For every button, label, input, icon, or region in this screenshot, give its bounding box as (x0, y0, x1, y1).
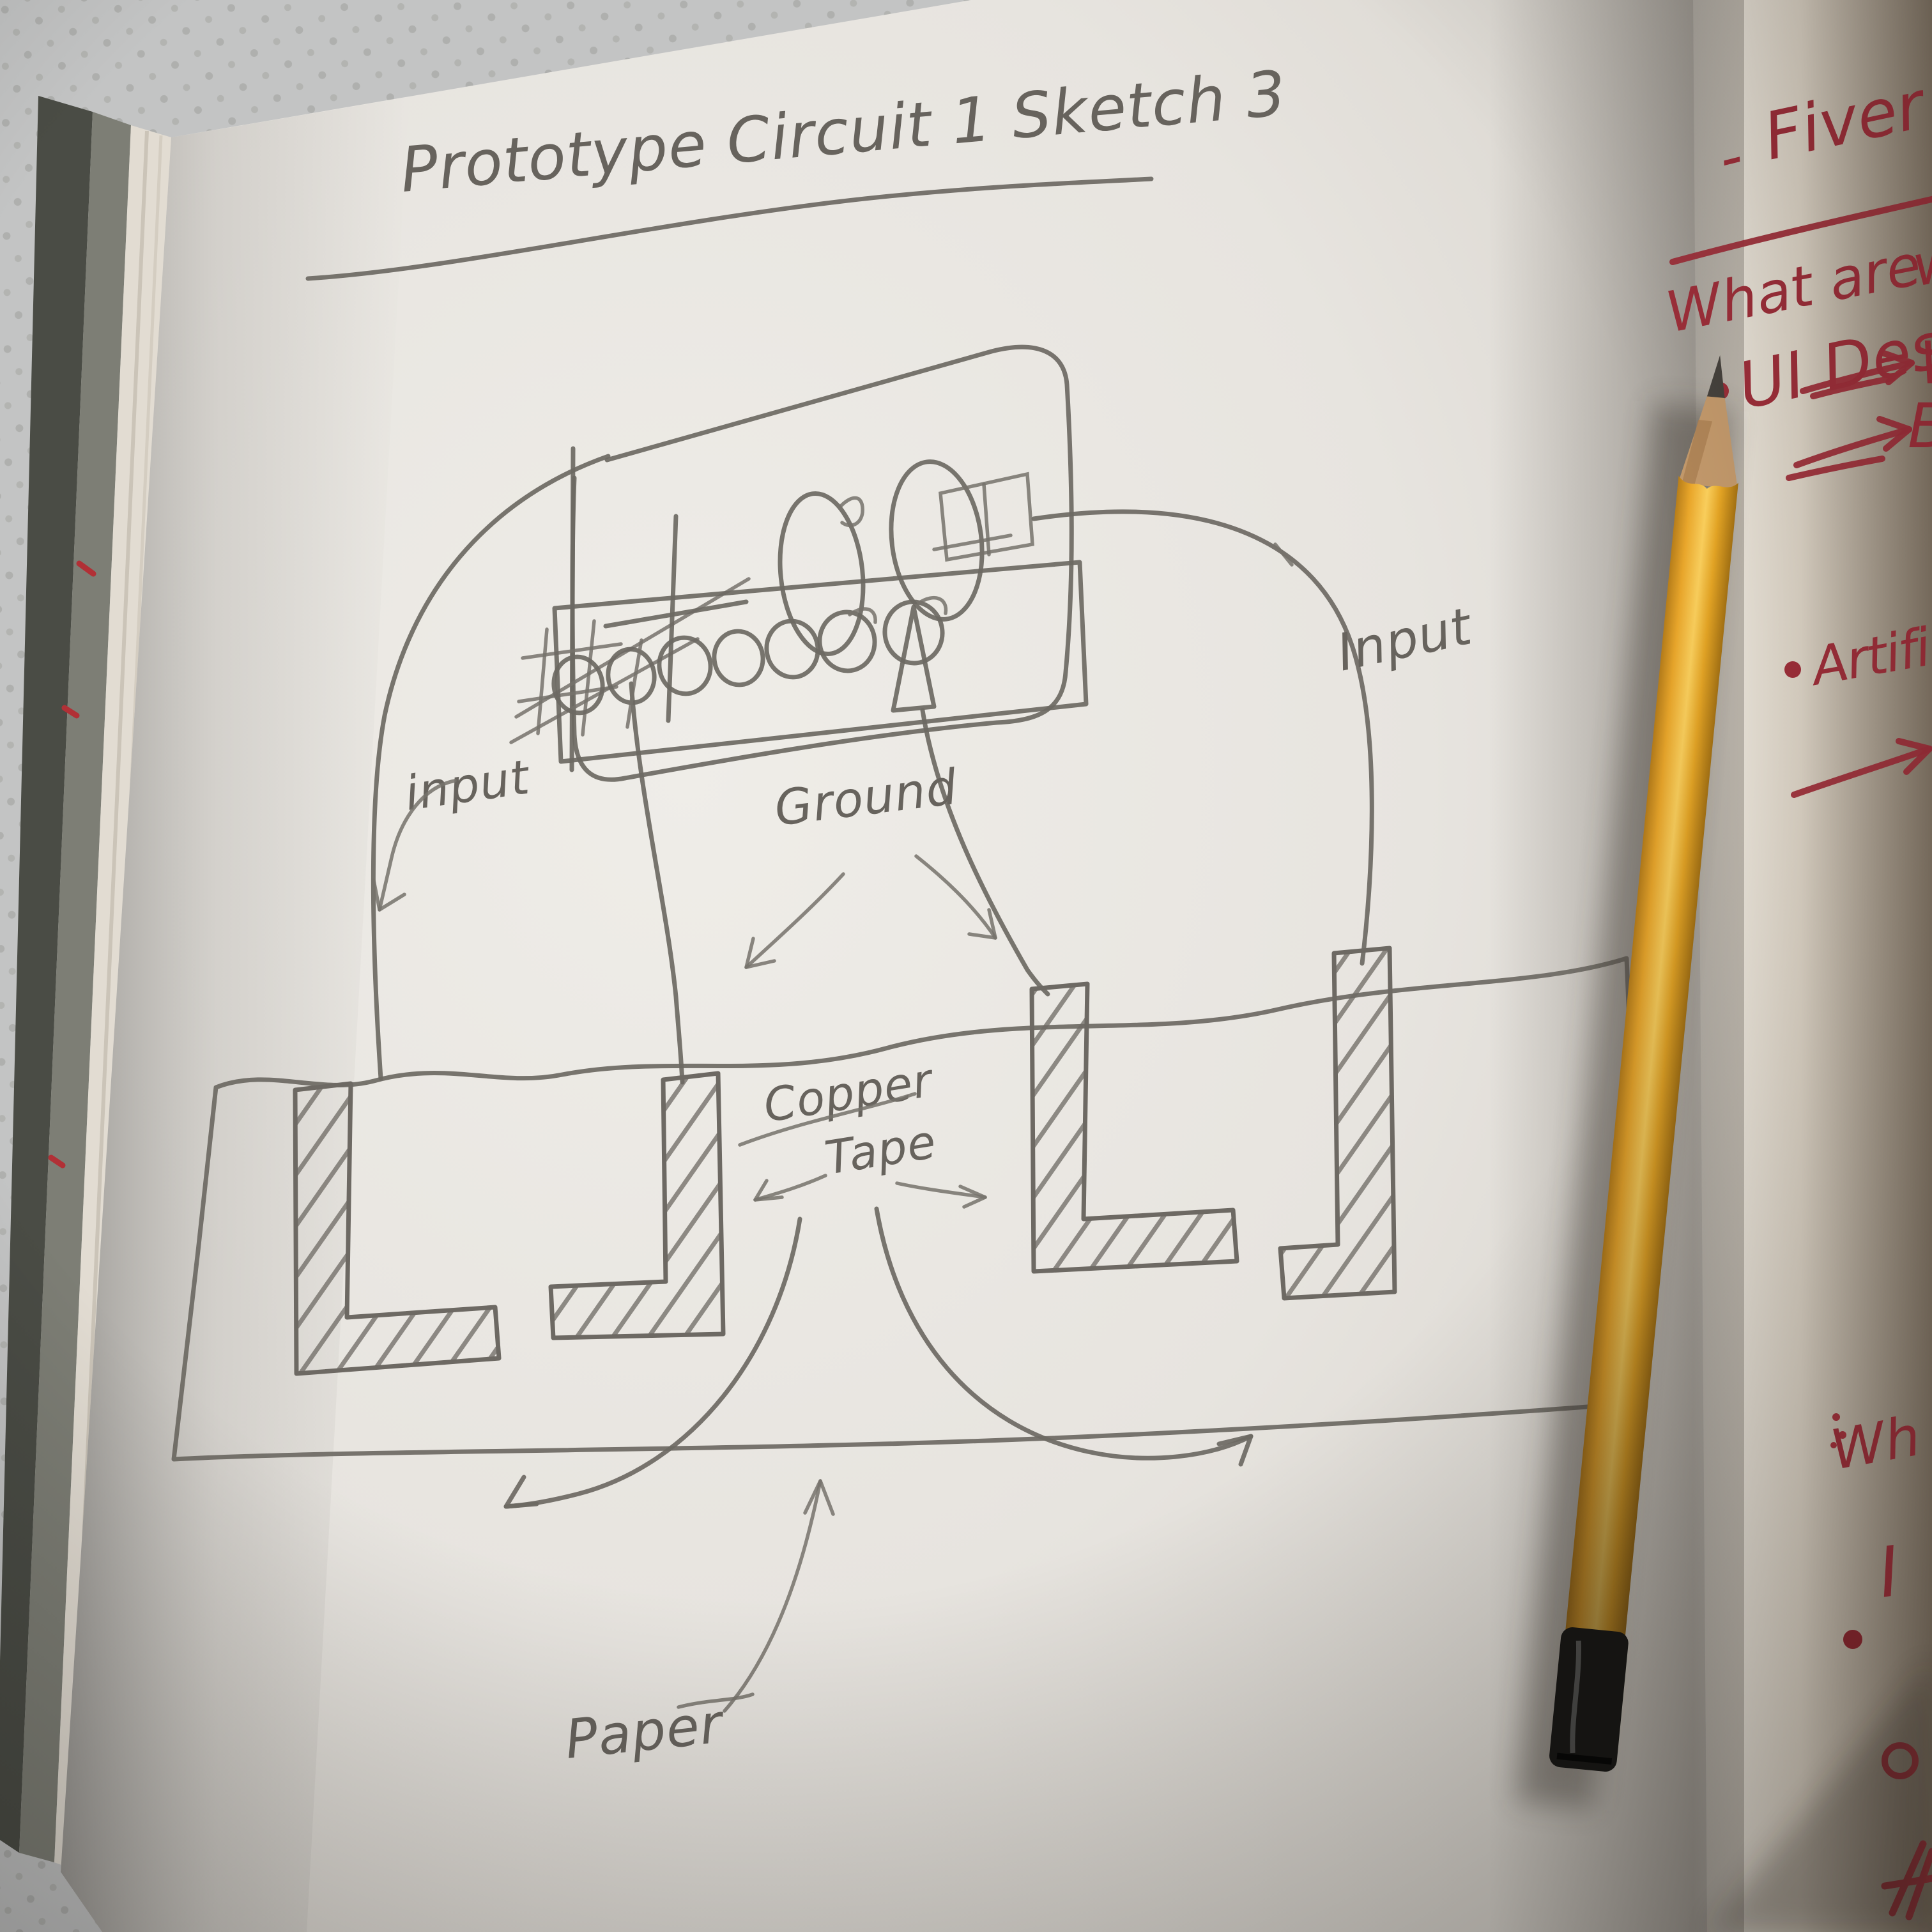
notebook-photo: Prototype Circuit 1 Sketch 3 (0, 0, 1932, 1932)
photo-canvas: Prototype Circuit 1 Sketch 3 (0, 0, 1932, 1932)
vignette (0, 0, 1932, 1932)
